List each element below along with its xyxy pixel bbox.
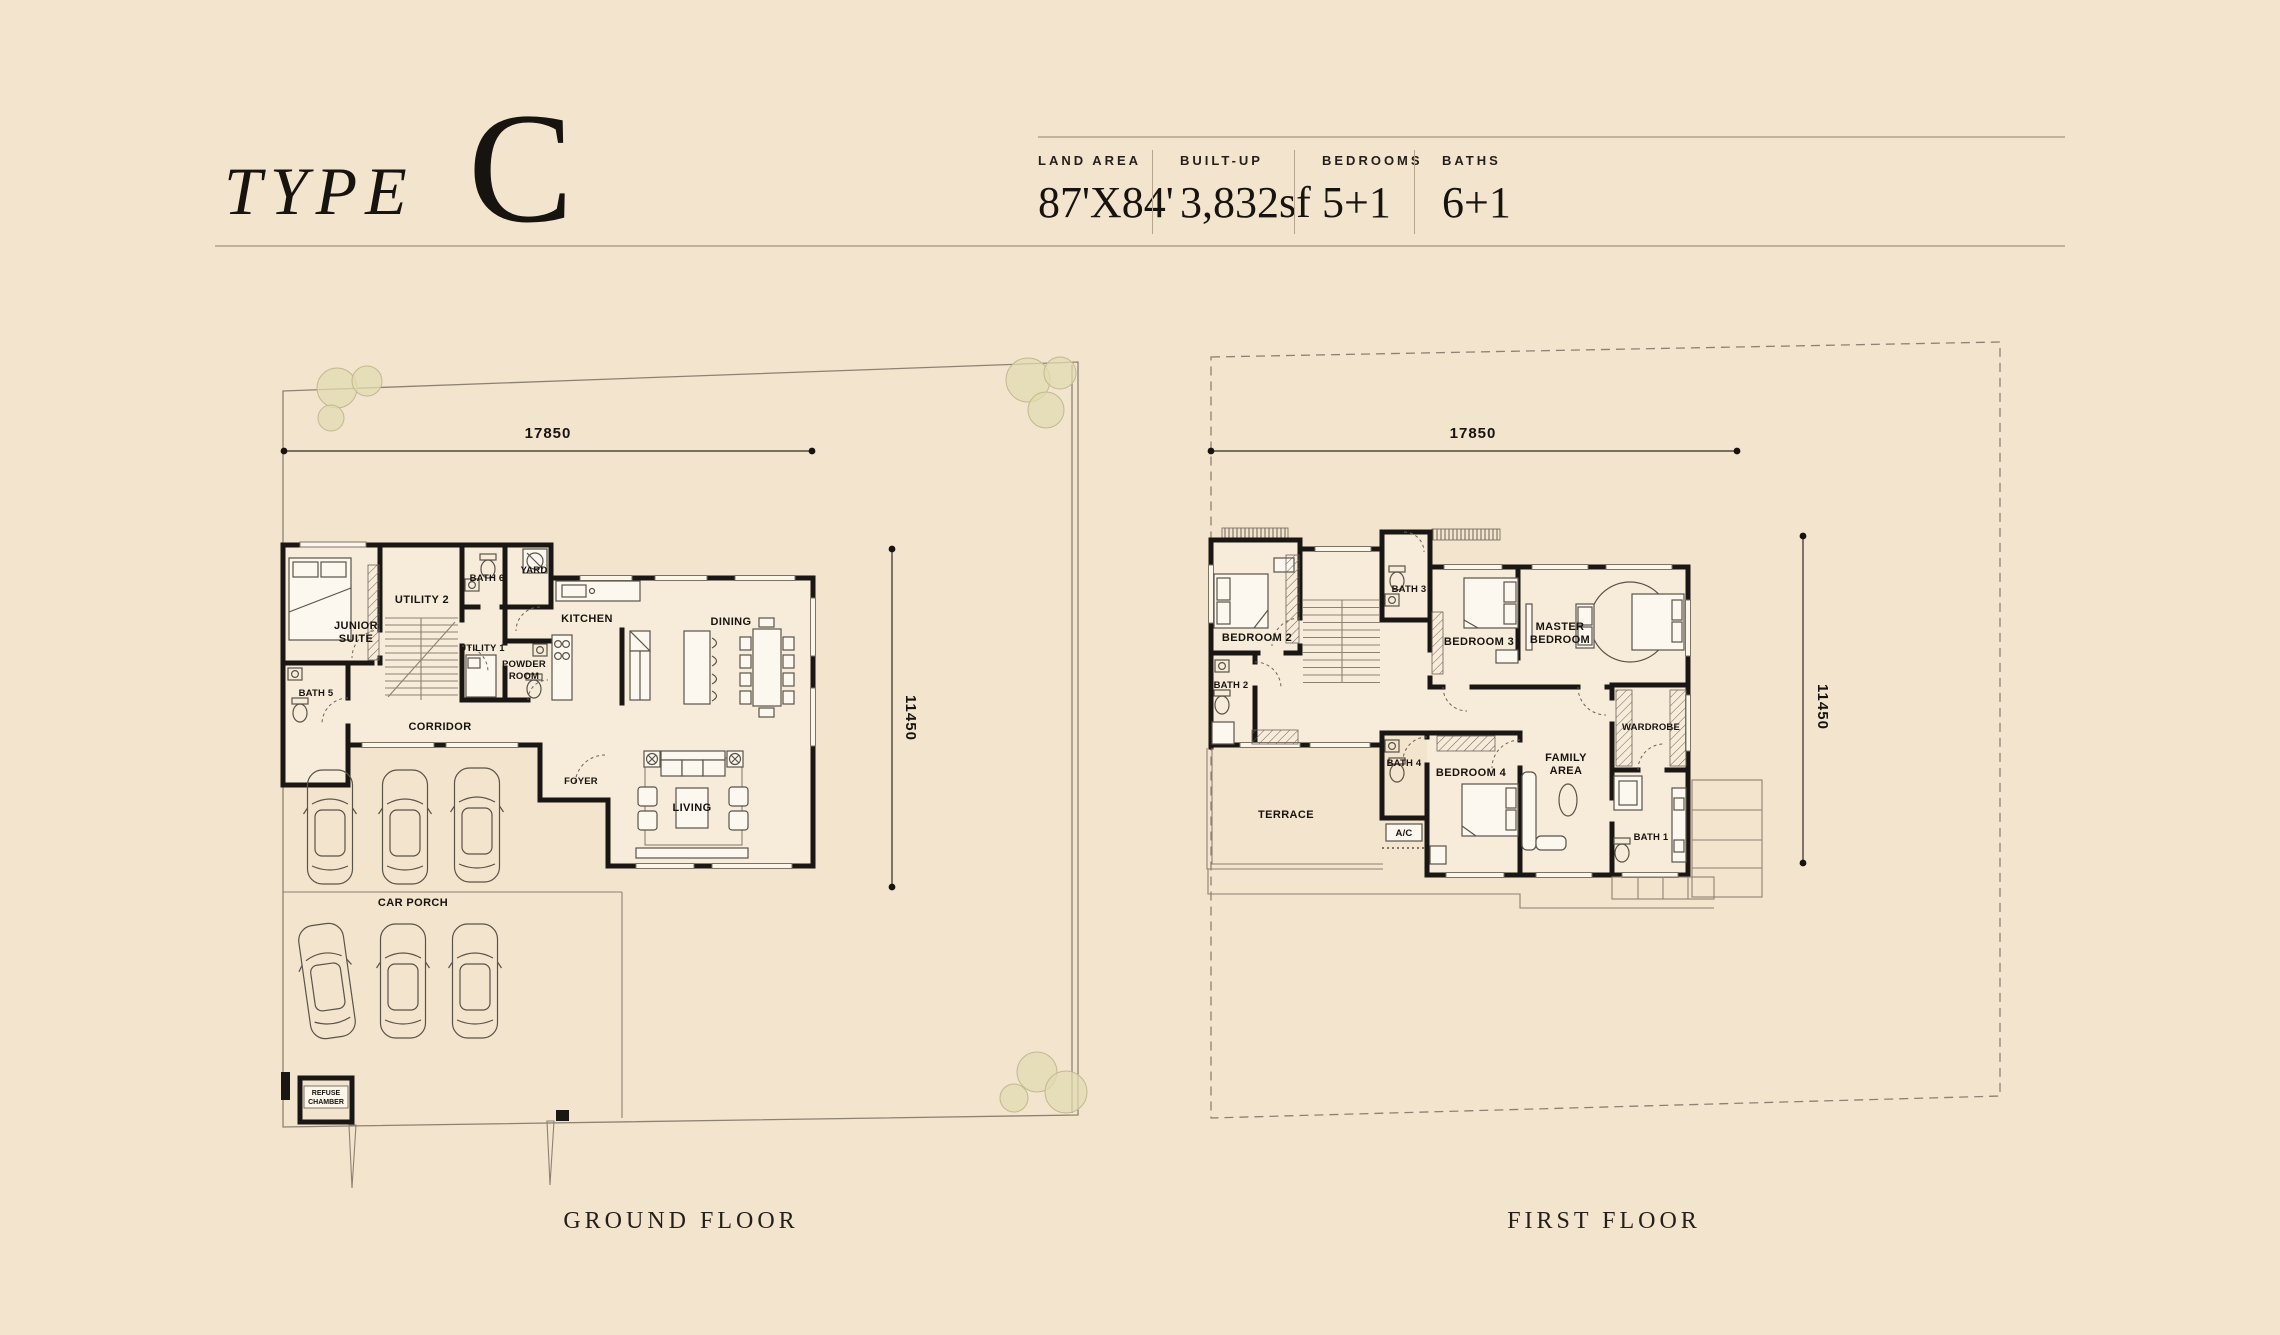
car-porch-label: CAR PORCH	[378, 897, 448, 909]
bedroom4-bed	[1462, 784, 1518, 836]
powder-room-label-1: POWDER	[502, 659, 546, 670]
bath5-label: BATH 5	[299, 688, 334, 699]
first-dimension-width: 17850	[1208, 425, 1741, 454]
master-bedroom-label-1: MASTER	[1536, 621, 1585, 633]
living-label: LIVING	[672, 802, 711, 814]
floorplans-drawing: 17850 11450	[0, 0, 2280, 1335]
ground-dimension-depth: 11450	[889, 546, 919, 891]
ground-dimension-width: 17850	[281, 425, 816, 454]
bath6-label: BATH 6	[470, 573, 505, 584]
ground-dim-depth-text: 11450	[902, 695, 919, 741]
corridor-cabinet	[1252, 730, 1298, 744]
bath2-label: BATH 2	[1214, 680, 1249, 691]
wardrobe-label: WARDROBE	[1622, 722, 1680, 733]
bedroom3-desk	[1496, 650, 1518, 663]
refuse-chamber-label-1: REFUSE	[312, 1090, 341, 1097]
first-floor-caption: FIRST FLOOR	[1507, 1208, 1701, 1234]
foyer-label: FOYER	[564, 776, 598, 787]
corridor-label: CORRIDOR	[408, 721, 471, 733]
junior-suite-label-1: JUNIOR	[334, 620, 378, 632]
first-dim-depth-text: 11450	[1814, 684, 1831, 730]
bath3-label: BATH 3	[1392, 584, 1427, 595]
utility1-label: UTILITY 1	[459, 643, 505, 654]
bath1-label: BATH 1	[1634, 832, 1669, 843]
bedroom4-label: BEDROOM 4	[1436, 767, 1507, 779]
kitchen-label: KITCHEN	[561, 613, 613, 625]
ac-label: A/C	[1396, 828, 1413, 839]
bedroom3-label: BEDROOM 3	[1444, 636, 1514, 648]
bath2-shower	[1212, 722, 1234, 744]
family-area-label-1: FAMILY	[1545, 752, 1587, 764]
bath4-basin	[1385, 740, 1399, 752]
bedroom3-wardrobe	[1432, 612, 1443, 674]
refuse-chamber: REFUSE CHAMBER	[281, 1072, 352, 1122]
powder-room-label-2: ROOM	[509, 671, 539, 682]
family-area-label-2: AREA	[1550, 765, 1583, 777]
floorplan-brochure-page: TYPE C LAND AREA 87'X84' BUILT-UP 3,832s…	[0, 0, 2280, 1335]
utility2-label: UTILITY 2	[395, 594, 449, 606]
first-dim-width-text: 17850	[1450, 425, 1497, 442]
gate-markers	[349, 1110, 569, 1188]
bath4-label: BATH 4	[1387, 758, 1422, 769]
ground-floor-caption: GROUND FLOOR	[563, 1208, 798, 1234]
first-dimension-depth: 11450	[1800, 533, 1831, 867]
bedroom2-bed	[1214, 574, 1268, 628]
first-floor-plan: 17850 11450	[1207, 342, 2000, 1234]
refuse-chamber-label-2: CHAMBER	[308, 1099, 344, 1106]
trellis-strip	[1432, 529, 1500, 540]
ground-dim-width-text: 17850	[525, 425, 572, 442]
trellis-strip	[1222, 528, 1288, 539]
bedroom4-desk	[1430, 846, 1446, 864]
ground-floor-plan: 17850 11450	[281, 357, 1087, 1234]
terrace-label: TERRACE	[1258, 809, 1314, 821]
bedroom3-bed	[1464, 578, 1518, 628]
master-bedroom-label-2: BEDROOM	[1530, 634, 1590, 646]
yard-label: YARD	[521, 565, 548, 576]
junior-suite-label-2: SUITE	[339, 633, 373, 645]
bedroom2-label: BEDROOM 2	[1222, 632, 1292, 644]
dining-label: DINING	[711, 616, 752, 628]
bedroom4-wardrobe	[1437, 736, 1495, 751]
bedroom2-wardrobe	[1286, 555, 1299, 643]
junior-suite-wardrobe	[368, 565, 379, 660]
